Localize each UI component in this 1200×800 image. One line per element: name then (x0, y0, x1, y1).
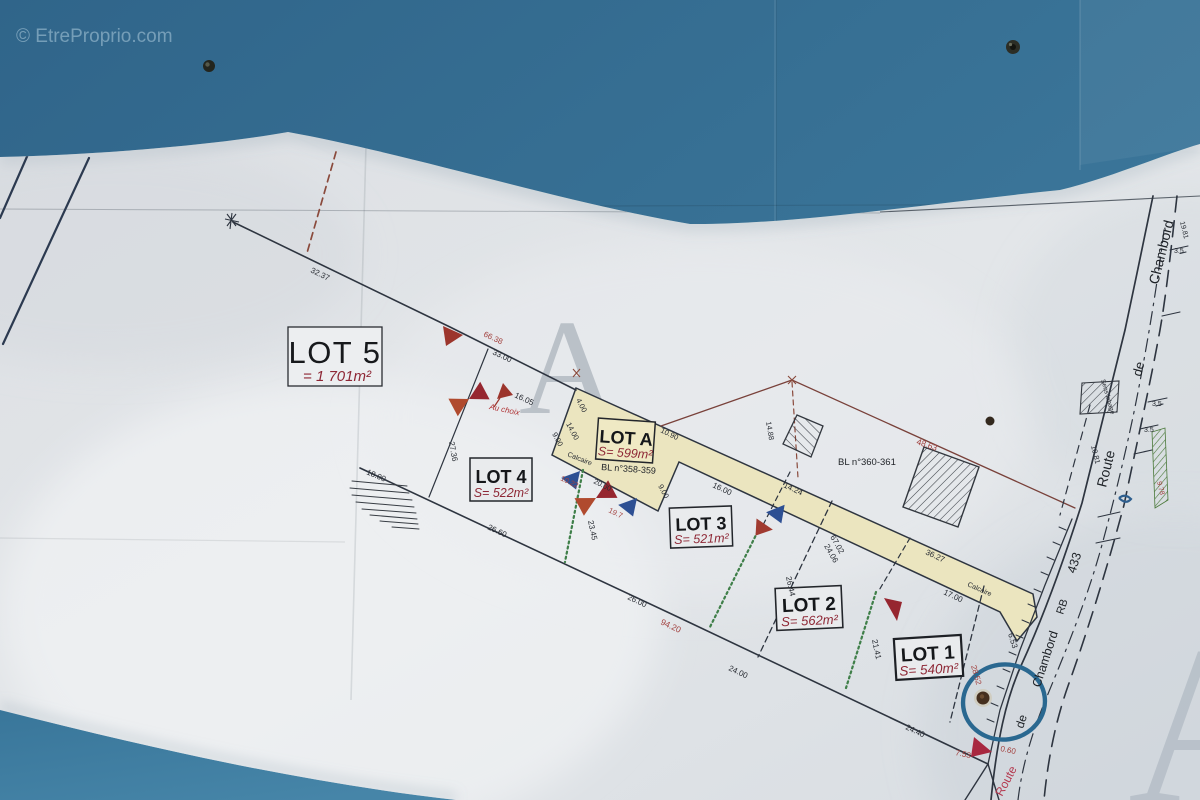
svg-text:S= 521m²: S= 521m² (674, 531, 730, 547)
svg-text:S= 562m²: S= 562m² (781, 612, 839, 629)
svg-text:© EtreProprio.com: © EtreProprio.com (16, 26, 173, 47)
svg-text:S= 522m²: S= 522m² (474, 486, 529, 500)
svg-text:= 1 701m²: = 1 701m² (303, 368, 372, 385)
svg-text:BL n°360-361: BL n°360-361 (838, 457, 896, 468)
svg-text:LOT 4: LOT 4 (475, 467, 526, 487)
svg-text:3.5: 3.5 (1144, 427, 1154, 434)
svg-text:LOT 5: LOT 5 (288, 335, 381, 370)
svg-text:3.5: 3.5 (1152, 401, 1162, 408)
svg-text:3.5: 3.5 (1174, 248, 1184, 255)
svg-text:A: A (1128, 600, 1200, 800)
